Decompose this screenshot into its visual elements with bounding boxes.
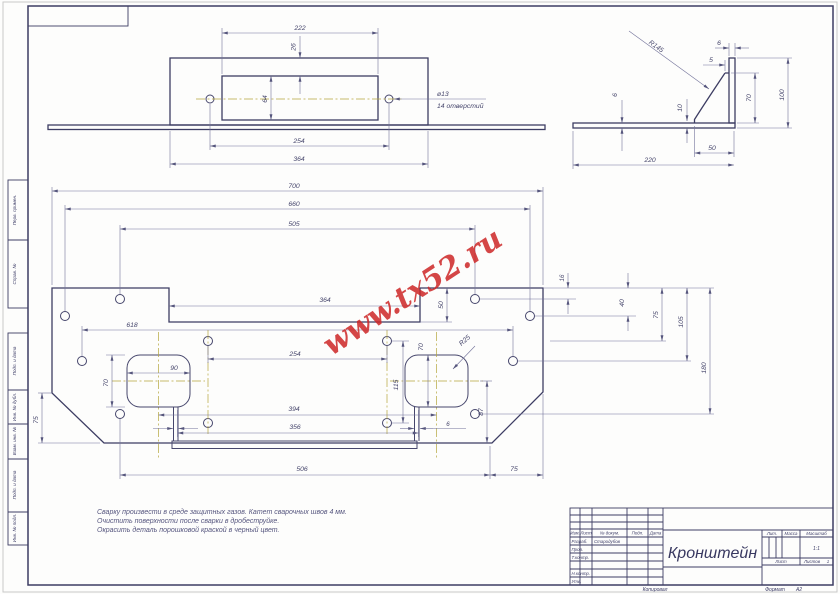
dim-700: 700 (288, 183, 300, 190)
front-view: 222 26 64 254 364 ø13 14 отверстий (48, 25, 545, 168)
side-view-outline (573, 58, 735, 128)
main-view-outline (52, 288, 543, 443)
dim-87: 87 (478, 408, 485, 416)
dim-5: 5 (709, 57, 713, 64)
row-prov: Пров. (572, 547, 584, 552)
dim-r25: R25 (458, 334, 472, 348)
col-data: Дата (649, 531, 662, 536)
left-margin-fields: Перв. примен. Справ. № Подп. и дата Инв.… (8, 180, 28, 545)
watermark: www.tx52.ru (317, 221, 509, 363)
dim-356: 356 (289, 424, 301, 431)
field-vzam-inv: Взам. инв. № (12, 427, 17, 455)
col-lit: Лит. (766, 531, 777, 536)
dim-618: 618 (126, 322, 138, 329)
format-value: А2 (795, 587, 802, 593)
dim-394: 394 (288, 406, 300, 413)
dim-254-main: 254 (288, 351, 301, 358)
col-podp: Подп. (632, 531, 644, 536)
dim-364-main: 364 (319, 297, 331, 304)
dim-26: 26 (291, 43, 298, 52)
dim-10: 10 (677, 104, 684, 112)
listov-label: Листов (803, 559, 821, 564)
note-line-3: Окрасить деталь порошковой краской в чер… (97, 526, 280, 534)
dim-75-left: 75 (33, 416, 40, 424)
note-line-1: Сварку произвести в среде защитных газов… (97, 508, 347, 516)
dim-16: 16 (559, 274, 566, 281)
part-name: Кронштейн (668, 545, 757, 562)
dim-90: 90 (170, 365, 178, 372)
dim-50-notch: 50 (438, 301, 445, 309)
dim-254-front: 254 (292, 138, 305, 145)
dim-100: 100 (779, 89, 786, 101)
front-view-outline (48, 58, 545, 130)
technical-notes: Сварку произвести в среде защитных газов… (97, 508, 347, 534)
hole-count-note: 14 отверстий (437, 102, 484, 110)
col-massa: Масса (785, 531, 799, 536)
row-tkontr: Т.контр. (572, 555, 590, 560)
dim-180: 180 (701, 362, 708, 374)
title-block: Изм. Лист № докум. Подп. Дата Разраб. Ст… (570, 508, 833, 585)
corner-stamp-box (28, 6, 128, 26)
field-inv-dubl: Инв. № дубл. (12, 393, 17, 421)
row-nkontr: Н.контр. (572, 571, 591, 576)
col-izm: Изм. (570, 531, 579, 536)
format-label: Формат (765, 587, 785, 593)
field-podp-data-2: Подп. и дата (12, 470, 17, 499)
razrab-name: Стародубов (594, 539, 621, 544)
dim-660: 660 (288, 201, 300, 208)
front-view-dimension-lines (170, 28, 486, 168)
dim-6-tab: 6 (446, 421, 450, 428)
dim-50-side: 50 (708, 145, 716, 152)
dim-75-right: 75 (653, 311, 660, 319)
row-utv: Утв. (572, 579, 582, 584)
dim-70-slot-left: 70 (103, 379, 110, 387)
dim-70-slot-right: 70 (418, 343, 425, 351)
note-line-2: Очистить поверхности после сварки в дроб… (97, 517, 279, 525)
list-label: Лист (774, 559, 787, 564)
hole-diameter-note: ø13 (437, 91, 449, 98)
dim-105: 105 (678, 316, 685, 328)
col-masshtab: Масштаб (806, 531, 827, 536)
dim-r145: R145 (647, 39, 664, 54)
field-podp-data-1: Подп. и дата (12, 346, 17, 375)
drawing-canvas: Перв. примен. Справ. № Подп. и дата Инв.… (0, 0, 840, 594)
kopiroval-label: Копировал (643, 587, 668, 593)
dim-40: 40 (619, 299, 626, 307)
field-inv-podl: Инв. № подл. (12, 514, 17, 543)
listov-value: 1 (827, 559, 830, 564)
field-sprav-no: Справ. № (12, 264, 17, 285)
dim-6-top: 6 (717, 40, 721, 47)
dim-222: 222 (293, 25, 306, 32)
side-view: 6 5 70 100 6 10 50 220 R145 (573, 31, 792, 169)
field-perv-primen: Перв. примен. (12, 195, 17, 226)
dim-505: 505 (288, 221, 300, 228)
row-razrab: Разраб. (572, 539, 588, 544)
col-doc: № докум. (600, 531, 619, 536)
bottom-strip (172, 441, 417, 449)
dim-115: 115 (393, 379, 400, 390)
scale-value: 1:1 (813, 546, 820, 552)
dim-75-bottom: 75 (510, 466, 518, 473)
side-view-dimension-lines (573, 31, 792, 169)
dim-220: 220 (643, 157, 656, 164)
dim-70-side: 70 (746, 94, 753, 102)
dim-364-front: 364 (293, 156, 305, 163)
col-list: Лист (579, 531, 592, 536)
dim-64: 64 (262, 95, 269, 103)
dim-6-left: 6 (612, 93, 619, 97)
drawing-sheet: Перв. примен. Справ. № Подп. и дата Инв.… (0, 0, 840, 594)
dim-506: 506 (296, 466, 308, 473)
main-view-centerlines (112, 330, 483, 458)
